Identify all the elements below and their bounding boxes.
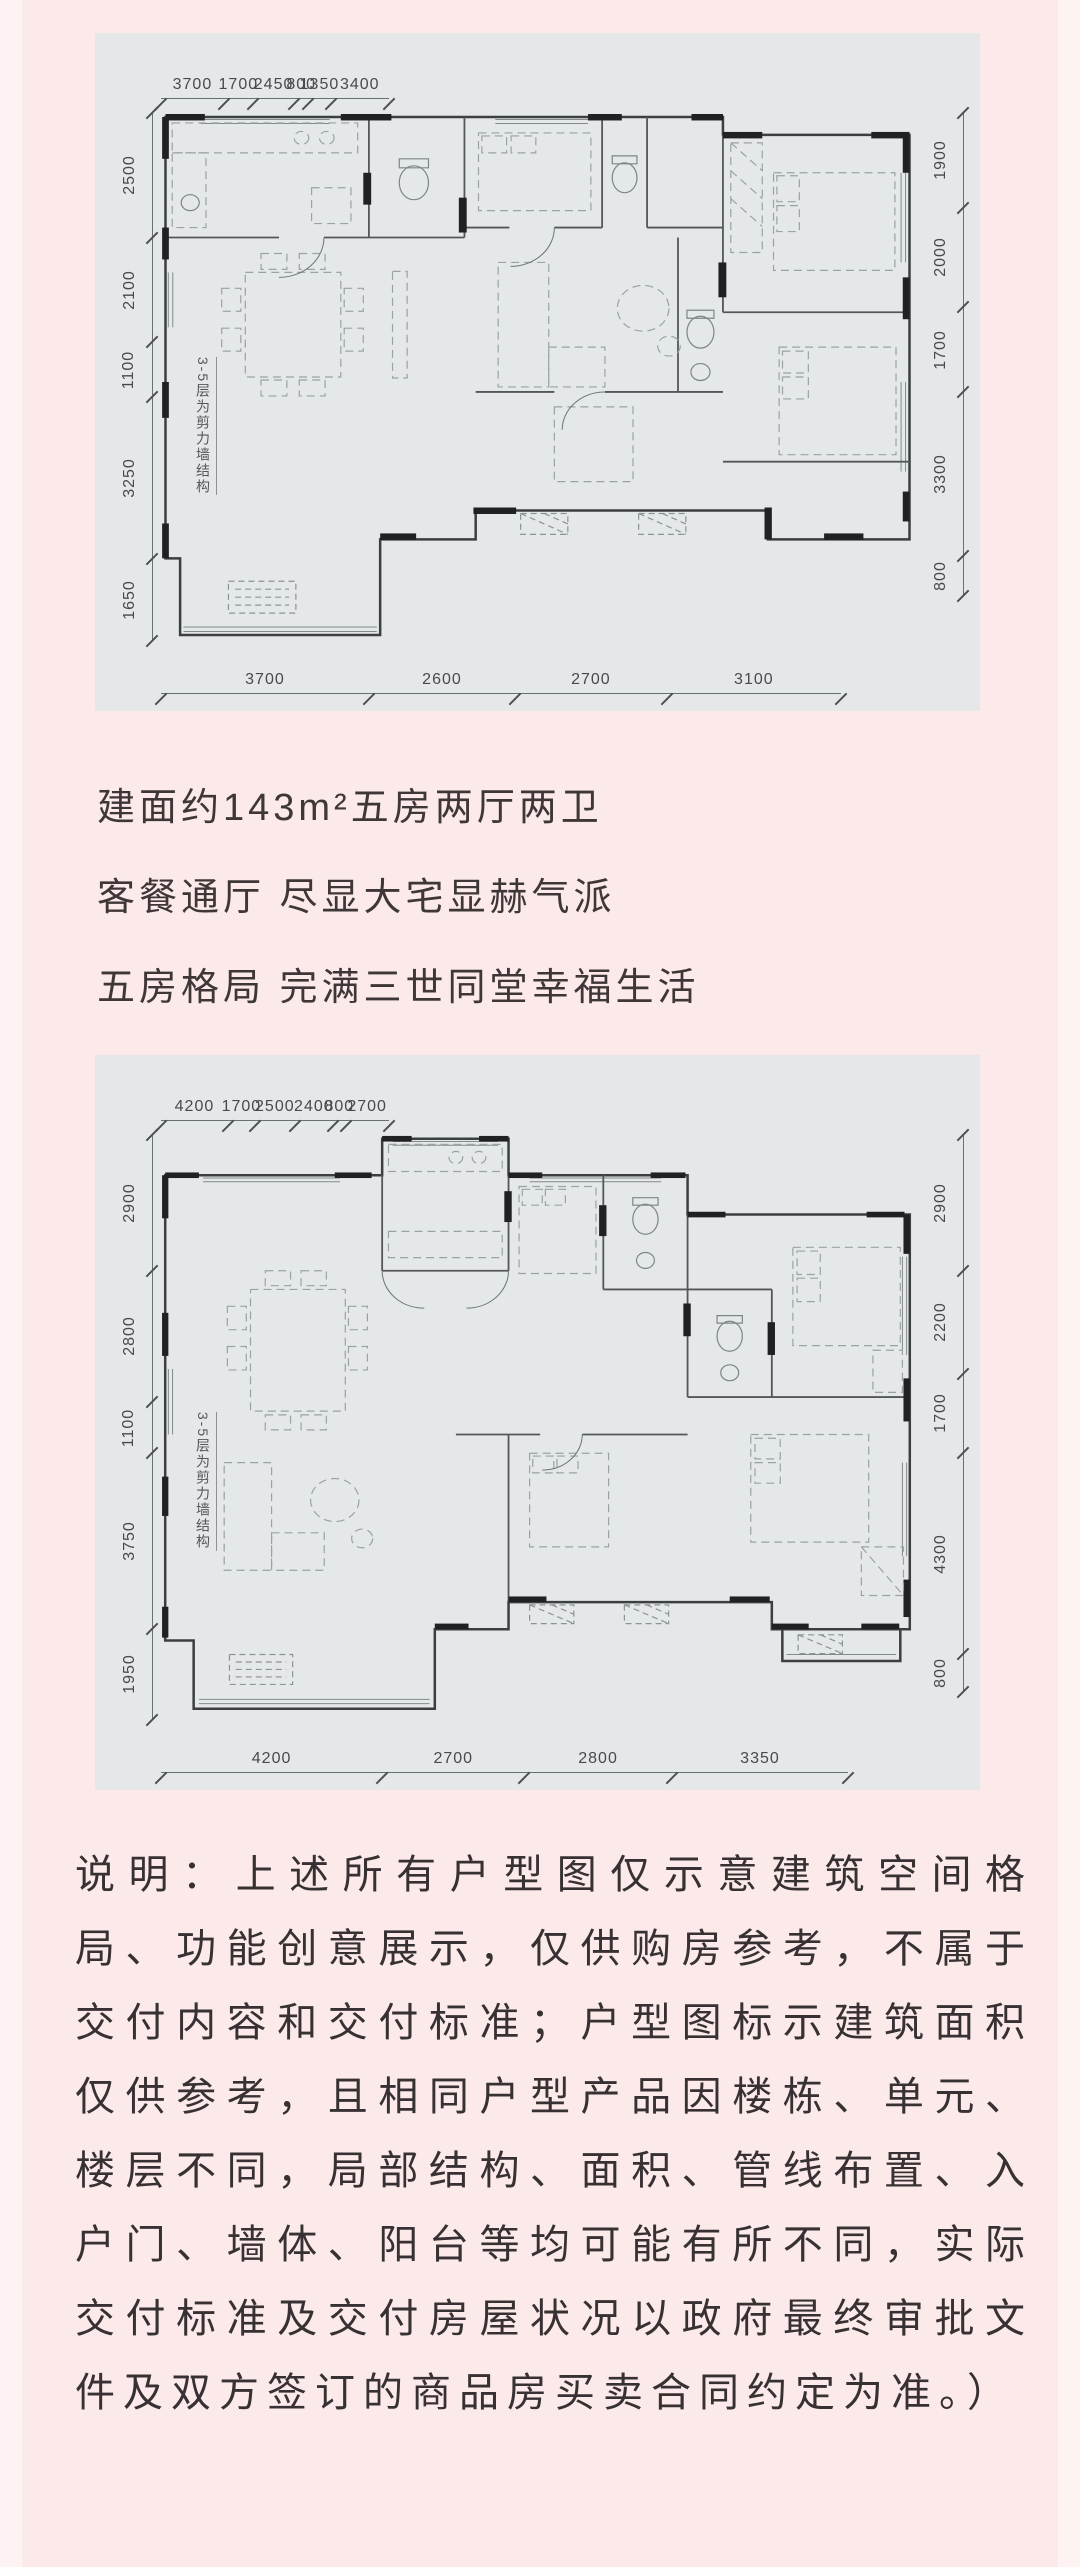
dimension-col-left: 29002800110037501950 (111, 1135, 153, 1720)
structure-note: 3-5层为剪力墙结构 (193, 357, 217, 495)
headline-line-2: 客餐通厅 尽显大宅显赫气派 (97, 848, 700, 938)
dims-left-wrap: 25002100110032501650 (111, 113, 153, 641)
dims-left-wrap: 29002800110037501950 (111, 1135, 153, 1720)
dims-right-wrap: 2900220017004300800 (922, 1135, 964, 1720)
dimension-row-bottom: 4200270028003350 (161, 1738, 848, 1773)
dimension-row-bottom: 3700260027003100 (161, 659, 841, 694)
dims-top-wrap: 42001700250024008002700 (161, 1071, 914, 1127)
headline-line-3: 五房格局 完满三世同堂幸福生活 (97, 938, 700, 1028)
dims-right-wrap: 1900200017003300800 (922, 113, 964, 641)
dims-bottom-wrap: 3700260027003100 (161, 649, 914, 703)
floorplan-drawing (161, 113, 914, 641)
floorplan-drawing (161, 1135, 914, 1720)
floorplan-drawing-area (161, 1135, 914, 1720)
structure-note: 3-5层为剪力墙结构 (193, 1412, 217, 1550)
dimension-col-right: 1900200017003300800 (922, 113, 964, 596)
dims-bottom-wrap: 4200270028003350 (161, 1728, 914, 1782)
floorplan-panel-2: 42001700250024008002700 2900280011003750… (95, 1055, 980, 1790)
dims-top-wrap: 37001700245080013503400 (161, 49, 914, 105)
dimension-row-top: 37001700245080013503400 (161, 64, 389, 99)
headline-block: 建面约143m²五房两厅两卫 客餐通厅 尽显大宅显赫气派 五房格局 完满三世同堂… (97, 758, 700, 1028)
dimension-row-top: 42001700250024008002700 (161, 1086, 389, 1121)
dimension-col-right: 2900220017004300800 (922, 1135, 964, 1692)
dimension-col-left: 25002100110032501650 (111, 113, 153, 641)
floorplan-drawing-area (161, 113, 914, 641)
disclaimer-text: 说明：上述所有户型图仅示意建筑空间格局、功能创意展示，仅供购房参考，不属于交付内… (75, 1838, 1033, 2430)
floorplan-panel-143: 37001700245080013503400 2500210011003250… (95, 33, 980, 711)
headline-line-1: 建面约143m²五房两厅两卫 (97, 758, 700, 848)
